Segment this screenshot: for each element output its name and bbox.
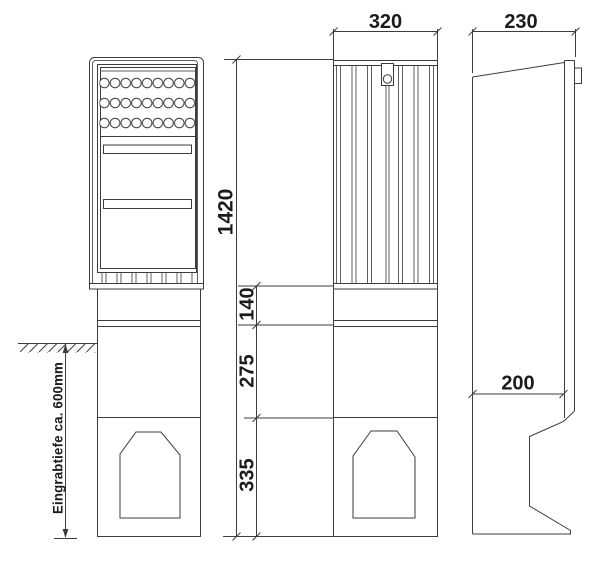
rib-section-a bbox=[334, 289, 438, 321]
base-block bbox=[334, 418, 438, 537]
dim-label-section-top: 140 bbox=[237, 287, 259, 320]
rib-section-a bbox=[98, 289, 201, 321]
side-base-profile bbox=[473, 411, 575, 534]
vent-slots bbox=[101, 273, 196, 284]
band-2 bbox=[98, 321, 201, 327]
arrow-down bbox=[63, 529, 69, 538]
band-2 bbox=[334, 321, 438, 327]
dim-label-front-width: 320 bbox=[369, 11, 402, 33]
door-gap-line bbox=[386, 86, 389, 284]
lock-cylinder bbox=[383, 75, 391, 83]
burial-depth-label: Eingrabtiefe ca. 600mm bbox=[50, 362, 66, 514]
technical-drawing: 200 320 230 1420 140 275 335 bbox=[0, 0, 600, 557]
dim-label-side-depth: 230 bbox=[504, 11, 537, 33]
side-sloped-top bbox=[473, 63, 565, 78]
rib-section-b bbox=[98, 327, 201, 418]
band-1 bbox=[334, 284, 438, 290]
side-view: 200 bbox=[469, 61, 582, 535]
ground-and-burial-depth: Eingrabtiefe ca. 600mm bbox=[18, 344, 98, 539]
door-ribs-left bbox=[335, 66, 378, 283]
side-latch bbox=[575, 68, 582, 84]
door-ribs-right bbox=[398, 66, 437, 283]
busbar-lower bbox=[104, 200, 192, 209]
front-closed-view bbox=[334, 61, 438, 537]
dim-label-base-depth: 200 bbox=[501, 373, 534, 395]
base-block bbox=[98, 418, 201, 537]
band-1 bbox=[90, 284, 204, 290]
ground-hatch bbox=[20, 344, 96, 353]
dim-label-section-middle: 275 bbox=[237, 354, 259, 387]
height-dimensions: 1420 140 275 335 bbox=[215, 56, 334, 541]
front-open-view bbox=[90, 58, 204, 537]
dim-label-total-height: 1420 bbox=[215, 189, 238, 236]
terminal-rows bbox=[100, 77, 197, 129]
rib-section-b bbox=[334, 327, 438, 418]
busbar-upper bbox=[104, 145, 192, 154]
dim-label-section-base: 335 bbox=[237, 458, 259, 491]
